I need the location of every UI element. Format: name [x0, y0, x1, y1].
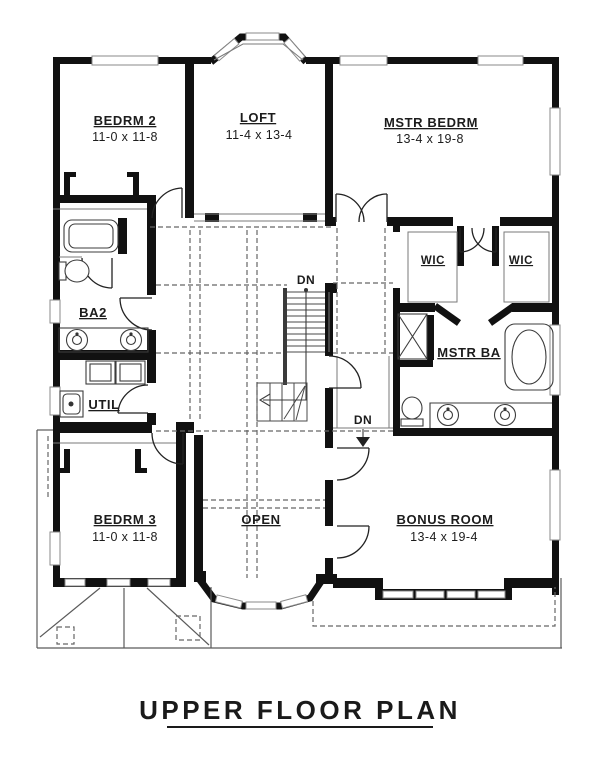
drawing-title: UPPER FLOOR PLAN [139, 695, 461, 727]
util-door [118, 385, 148, 413]
mstrba-tub [505, 324, 553, 390]
ba2-sink-1 [67, 330, 88, 351]
bedrm3-window-1 [65, 579, 85, 586]
floor-plan-canvas: BEDRM 2 11-0 x 11-8 LOFT 11-4 x 13-4 MST… [0, 0, 600, 761]
bonus-window-2 [416, 591, 444, 598]
bonus-window-1 [383, 591, 413, 598]
bonus-window-4 [478, 591, 505, 598]
mstrba-sink-2 [495, 405, 516, 426]
mstrba-shower [398, 314, 427, 359]
bedrm3-closet-walls [58, 449, 147, 473]
stair-winders [257, 383, 307, 421]
plan-title: UPPER FLOOR PLAN [139, 695, 461, 725]
wic-right-shelving [504, 232, 549, 302]
bonus-door-2 [337, 526, 369, 558]
room-label-wic-left: WIC [421, 255, 445, 267]
bay-window-right [284, 38, 305, 61]
ba2-door [120, 298, 152, 330]
room-label-mstr-bedrm: MSTR BEDRM [384, 115, 478, 130]
room-label-util: UTIL [88, 397, 119, 412]
ba2-toilet [59, 260, 89, 282]
mstrba-sink-1 [438, 405, 459, 426]
util-window [50, 387, 60, 415]
hall-corridor-door [329, 356, 361, 388]
bonus-door-1 [337, 448, 369, 480]
mstr-side-window [550, 108, 560, 175]
bedrm2-window [92, 56, 158, 65]
room-dims-loft: 11-4 x 13-4 [226, 128, 293, 142]
down-arrow-head [356, 437, 370, 447]
room-label-open: OPEN [241, 512, 280, 527]
room-label-mstr-ba: MSTR BA [437, 345, 500, 360]
util-sink [60, 391, 83, 417]
mstr-double-door [336, 194, 387, 222]
bedrm2-closet-walls [64, 172, 139, 196]
porch-post-1 [57, 627, 74, 644]
room-label-bedrm2: BEDRM 2 [94, 113, 157, 128]
bedrm3-window-3 [148, 579, 170, 586]
room-dims-bedrm2: 11-0 x 11-8 [92, 130, 158, 144]
room-label-loft: LOFT [240, 110, 276, 125]
bedrm3-window-2 [107, 579, 130, 586]
stair-dn-label-bottom: DN [354, 413, 372, 427]
mstr-window-1 [340, 56, 387, 65]
wic-double-door [460, 228, 496, 252]
bedrm3-side-window [50, 532, 60, 565]
stair-dn-label-top: DN [297, 273, 315, 287]
room-dims-bonus: 13-4 x 19-4 [410, 530, 478, 544]
open-bay-window-right [281, 595, 308, 608]
bay-window-top [246, 33, 279, 40]
bonus-side-window [550, 470, 560, 540]
fixtures-ba2 [59, 220, 148, 352]
room-dims-bedrm3: 11-0 x 11-8 [92, 530, 158, 544]
open-bay-window-bottom [246, 602, 276, 609]
ba2-window [50, 300, 60, 323]
lower-stair-arrow [356, 429, 370, 447]
bonus-window-3 [447, 591, 475, 598]
room-label-ba2: BA2 [79, 305, 107, 320]
mstr-window-2 [478, 56, 523, 65]
bedrm2-door [152, 188, 182, 218]
porch-hip-line-1 [40, 588, 100, 637]
room-label-bonus: BONUS ROOM [397, 512, 494, 527]
mstrba-toilet [401, 397, 423, 426]
wic-left-shelving [408, 232, 457, 302]
room-dims-mstr-bedrm: 13-4 x 19-8 [396, 132, 464, 146]
porch-post-2 [176, 616, 200, 640]
fixtures-mstr-ba [398, 314, 553, 428]
room-label-wic-right: WIC [509, 255, 533, 267]
room-label-bedrm3: BEDRM 3 [94, 512, 157, 527]
ba2-sink-2 [121, 330, 142, 351]
